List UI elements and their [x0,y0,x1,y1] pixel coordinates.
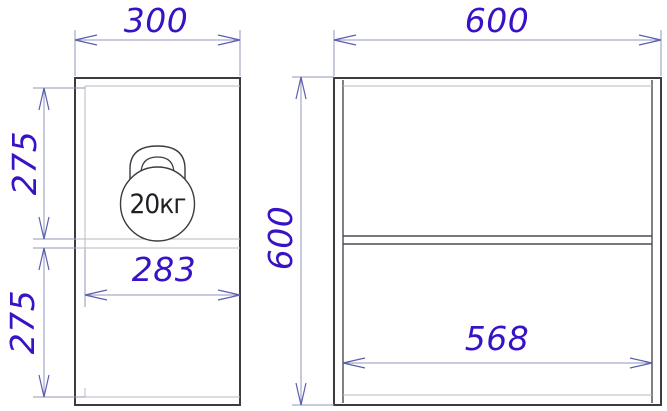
dim-front-height: 600 [261,77,334,405]
dim-side-upper-height-value: 275 [5,131,44,196]
dim-front-width: 600 [334,1,661,76]
dim-front-inner-width-value: 568 [465,319,530,358]
dim-side-upper-height: 275 [5,88,85,239]
dim-side-lower-height: 275 [3,248,85,397]
side-view: 20кг [75,78,240,405]
kettlebell-icon: 20кг [121,146,195,241]
kettlebell-weight-label: 20кг [130,189,186,220]
drawing-canvas: 20кг 300 [0,0,667,411]
dim-side-width: 300 [75,1,240,76]
dim-side-inner-depth-value: 283 [132,250,197,289]
dim-side-width-value: 300 [124,1,189,40]
dim-front-width-value: 600 [465,1,530,40]
dim-side-lower-height-value: 275 [3,290,42,355]
technical-drawing: 20кг 300 [0,0,667,411]
dim-front-height-value: 600 [261,206,300,271]
